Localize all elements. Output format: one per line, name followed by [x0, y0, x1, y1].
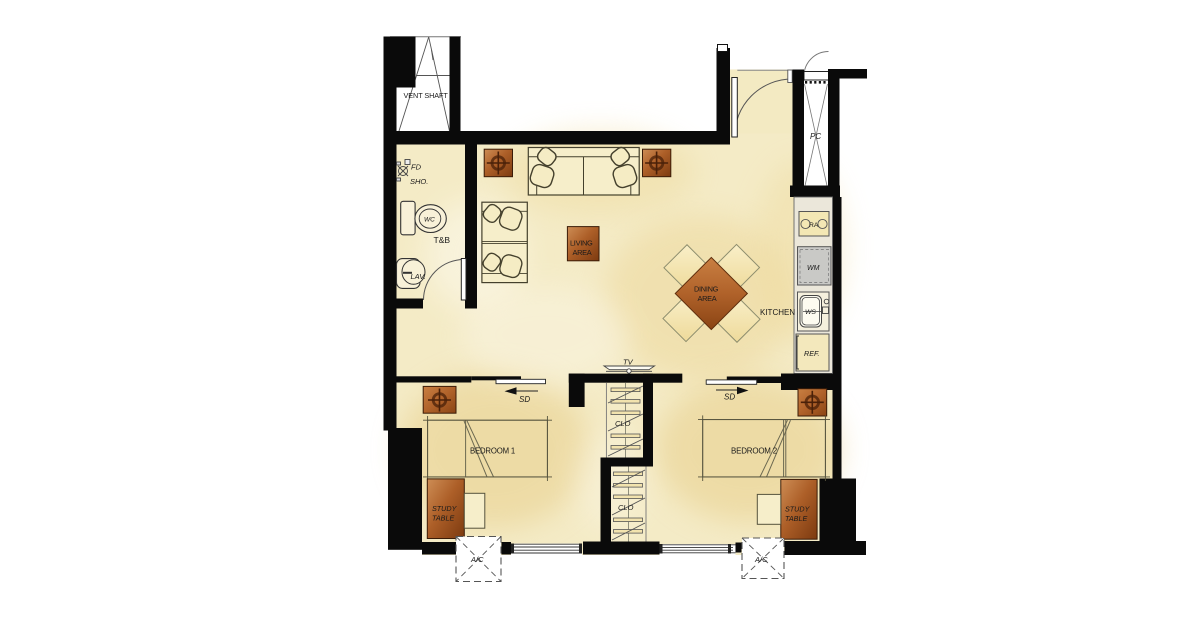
svg-text:BEDROOM 2: BEDROOM 2: [731, 446, 778, 456]
svg-text:KITCHEN: KITCHEN: [760, 308, 795, 317]
svg-text:TABLE: TABLE: [785, 514, 807, 523]
svg-text:LAV.: LAV.: [411, 272, 426, 281]
svg-text:FD: FD: [411, 163, 422, 172]
svg-text:BEDROOM 1: BEDROOM 1: [470, 446, 516, 456]
svg-text:AREA: AREA: [698, 294, 717, 303]
svg-text:LIVING: LIVING: [570, 239, 593, 248]
svg-text:A/C: A/C: [754, 555, 768, 564]
svg-text:WC: WC: [424, 217, 435, 224]
svg-text:TABLE: TABLE: [432, 514, 454, 523]
svg-text:AREA: AREA: [573, 248, 592, 257]
svg-text:REF.: REF.: [804, 349, 819, 358]
svg-text:CLO: CLO: [618, 503, 634, 512]
svg-text:PC: PC: [810, 132, 821, 141]
svg-text:A/C: A/C: [470, 555, 484, 564]
svg-text:RA: RA: [809, 222, 819, 229]
svg-text:WS: WS: [805, 309, 816, 316]
svg-text:STUDY: STUDY: [432, 504, 458, 513]
svg-text:T&B: T&B: [434, 235, 451, 245]
svg-text:SD: SD: [724, 393, 735, 402]
svg-text:SHO.: SHO.: [410, 177, 428, 186]
svg-text:TV: TV: [623, 358, 634, 367]
svg-text:CLO: CLO: [615, 419, 631, 428]
svg-text:WM: WM: [807, 265, 820, 272]
svg-text:VENT SHAFT: VENT SHAFT: [404, 91, 449, 100]
svg-text:STUDY: STUDY: [785, 505, 811, 514]
svg-text:SD: SD: [519, 395, 530, 404]
svg-text:DINING: DINING: [694, 285, 719, 294]
